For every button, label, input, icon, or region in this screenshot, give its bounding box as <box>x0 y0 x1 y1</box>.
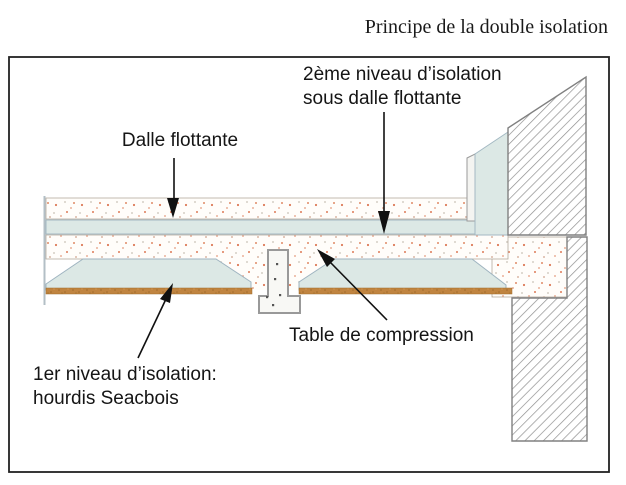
second-insulation-layer <box>46 220 508 234</box>
label-first-insulation-line2: hourdis Seacbois <box>33 388 179 409</box>
label-second-insulation-line2: sous dalle flottante <box>303 88 461 109</box>
label-second-insulation-line1: 2ème niveau d’isolation <box>303 64 502 85</box>
label-first-insulation-line1: 1er niveau d’isolation: <box>33 364 217 385</box>
hourdis-block-left <box>46 259 251 290</box>
floating-slab-layer <box>46 198 467 219</box>
wood-strip-left <box>46 288 252 294</box>
label-floating-slab: Dalle flottante <box>122 130 238 151</box>
label-compression-table: Table de compression <box>289 325 474 346</box>
double-insulation-diagram: Principe de la double isolation 2ème niv… <box>0 0 626 485</box>
edge-band <box>467 154 475 221</box>
diagram-canvas: Principe de la double isolation 2ème niv… <box>0 0 626 485</box>
wood-strip-right <box>299 288 512 294</box>
diagram-title: Principe de la double isolation <box>365 16 608 38</box>
